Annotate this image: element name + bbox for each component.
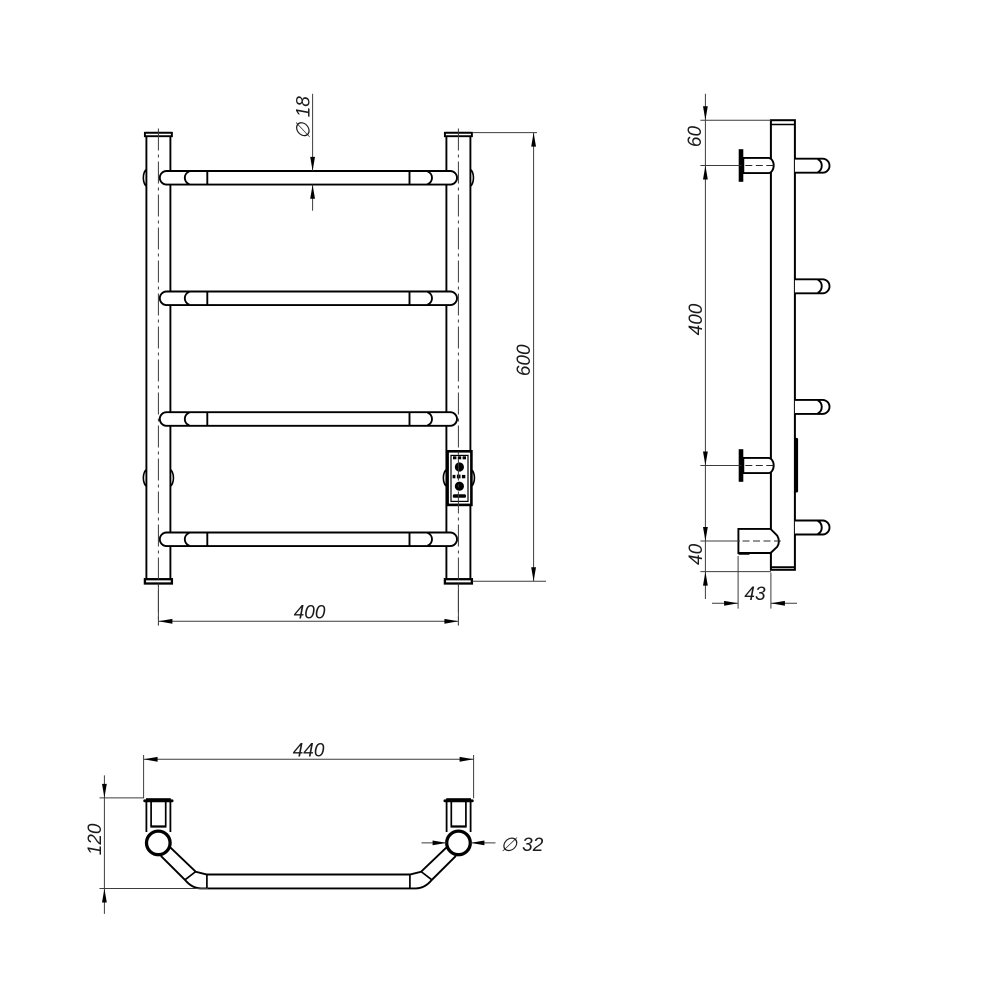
svg-text:120: 120 <box>85 823 106 855</box>
svg-text:600: 600 <box>514 344 535 376</box>
svg-text:∅ 32: ∅ 32 <box>500 835 543 856</box>
svg-text:400: 400 <box>686 303 707 335</box>
svg-text:∅ 18: ∅ 18 <box>294 96 315 139</box>
svg-text:40: 40 <box>686 543 707 565</box>
svg-text:43: 43 <box>744 584 766 605</box>
svg-text:60: 60 <box>685 126 706 148</box>
svg-text:440: 440 <box>293 740 325 761</box>
svg-text:400: 400 <box>294 602 326 623</box>
